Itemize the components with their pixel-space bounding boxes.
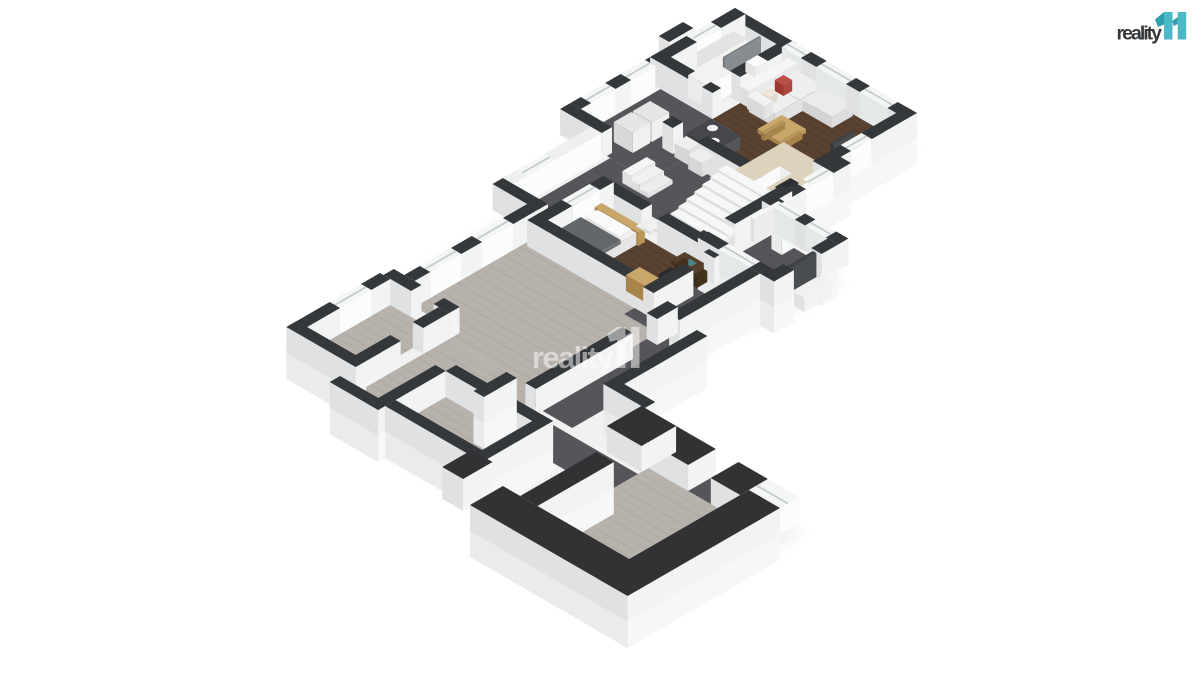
svg-text:reality: reality bbox=[1117, 23, 1163, 45]
svg-text:reality: reality bbox=[532, 340, 614, 375]
